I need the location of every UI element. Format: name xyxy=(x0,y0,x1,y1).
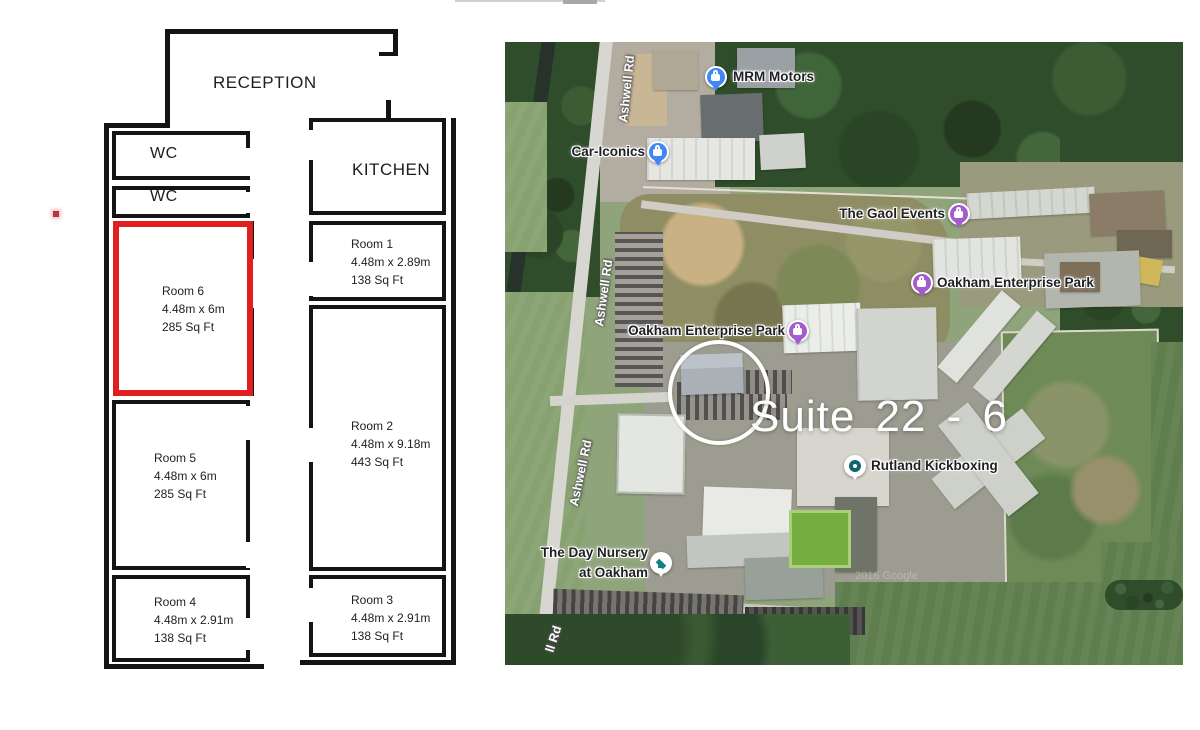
door-gap xyxy=(246,618,252,650)
building xyxy=(616,413,685,494)
wall xyxy=(300,660,456,665)
tree-clump xyxy=(1105,580,1183,610)
door-gap xyxy=(307,428,313,462)
parking-lot xyxy=(615,232,663,387)
kitchen-label: KITCHEN xyxy=(352,160,430,180)
room-area: 285 Sq Ft xyxy=(162,318,290,336)
wall xyxy=(451,118,456,665)
poi-label-the-gaol-events[interactable]: The Gaol Events xyxy=(839,206,945,221)
room-area: 138 Sq Ft xyxy=(351,271,480,289)
room-dimensions: 4.48m x 2.91m xyxy=(154,611,284,629)
room-name: Room 4 xyxy=(154,593,284,611)
door-gap xyxy=(307,262,313,296)
poi-pin-oakham-enterprise-park-center[interactable] xyxy=(787,320,809,342)
poi-pin-the-gaol-events[interactable] xyxy=(948,203,970,225)
red-marker-dot xyxy=(53,211,59,217)
poi-pin-day-nursery[interactable] xyxy=(650,552,672,574)
wall xyxy=(104,664,264,669)
room-5: Room 5 4.48m x 6m 285 Sq Ft xyxy=(112,400,250,570)
door-gap xyxy=(246,542,252,568)
poi-label-day-nursery-line2[interactable]: at Oakham xyxy=(579,565,648,580)
room-name: Room 3 xyxy=(351,591,480,609)
door-gap xyxy=(246,406,252,440)
wall xyxy=(104,123,170,128)
sports-pitch xyxy=(789,510,851,568)
wc2-label: WC xyxy=(150,188,178,206)
room-dimensions: 4.48m x 9.18m xyxy=(351,435,480,453)
poi-pin-oakham-enterprise-park-east[interactable] xyxy=(911,272,933,294)
poi-label-mrm-motors[interactable]: MRM Motors xyxy=(733,69,814,84)
suite-label: Suite 22 - 6 xyxy=(750,392,1008,442)
cropped-titlebar-remnant xyxy=(455,0,605,2)
field-topleft xyxy=(505,102,547,252)
room-area: 138 Sq Ft xyxy=(351,627,480,645)
room-dimensions: 4.48m x 6m xyxy=(154,467,284,485)
wall xyxy=(165,29,170,127)
poi-pin-mrm-motors[interactable] xyxy=(705,66,727,88)
wall xyxy=(104,123,109,669)
wall xyxy=(165,29,398,34)
room-wc-2 xyxy=(112,186,250,218)
door-gap xyxy=(246,148,252,176)
poi-label-rutland-kickboxing[interactable]: Rutland Kickboxing xyxy=(871,458,998,473)
wc1-label: WC xyxy=(150,145,178,163)
poi-pin-rutland-kickboxing[interactable] xyxy=(844,455,866,477)
building xyxy=(653,50,698,90)
room-2: Room 2 4.48m x 9.18m 443 Sq Ft xyxy=(309,305,446,571)
room-area: 443 Sq Ft xyxy=(351,453,480,471)
wall xyxy=(386,100,391,120)
room-area: 285 Sq Ft xyxy=(154,485,284,503)
poi-label-oakham-enterprise-park-east[interactable]: Oakham Enterprise Park xyxy=(937,275,1094,290)
poi-pin-car-iconics[interactable] xyxy=(647,141,669,163)
poi-label-day-nursery-line1[interactable]: The Day Nursery xyxy=(541,545,648,560)
room-name: Room 2 xyxy=(351,417,480,435)
door-gap xyxy=(307,130,313,160)
room-name: Room 1 xyxy=(351,235,480,253)
room-6-highlight-box: Room 6 4.48m x 6m 285 Sq Ft xyxy=(113,221,253,396)
room-name: Room 6 xyxy=(162,282,290,300)
wall xyxy=(379,52,395,56)
room-4: Room 4 4.48m x 2.91m 138 Sq Ft xyxy=(112,575,250,662)
building xyxy=(700,93,764,143)
building xyxy=(759,133,806,170)
poi-label-oakham-enterprise-park-center[interactable]: Oakham Enterprise Park xyxy=(628,323,785,338)
room-dimensions: 4.48m x 2.91m xyxy=(351,609,480,627)
satellite-map[interactable]: 2016 Google Ashwell Rd Ashwell Rd Ashwel… xyxy=(505,42,1183,665)
room-dimensions: 4.48m x 6m xyxy=(162,300,290,318)
room-name: Room 5 xyxy=(154,449,284,467)
door-gap xyxy=(246,192,252,213)
poi-label-car-iconics[interactable]: Car-Iconics xyxy=(571,144,645,159)
room-dimensions: 4.48m x 2.89m xyxy=(351,253,480,271)
room-area: 138 Sq Ft xyxy=(154,629,284,647)
imagery-watermark: 2016 Google xyxy=(855,570,918,582)
room-3: Room 3 4.48m x 2.91m 138 Sq Ft xyxy=(309,575,446,657)
page: RECEPTION WC WC Room 6 4.48m x 6m 285 Sq… xyxy=(0,0,1200,730)
door-gap xyxy=(307,588,313,622)
room-wc-1 xyxy=(112,131,250,180)
reception-label: RECEPTION xyxy=(213,73,317,93)
room-1: Room 1 4.48m x 2.89m 138 Sq Ft xyxy=(309,221,446,301)
